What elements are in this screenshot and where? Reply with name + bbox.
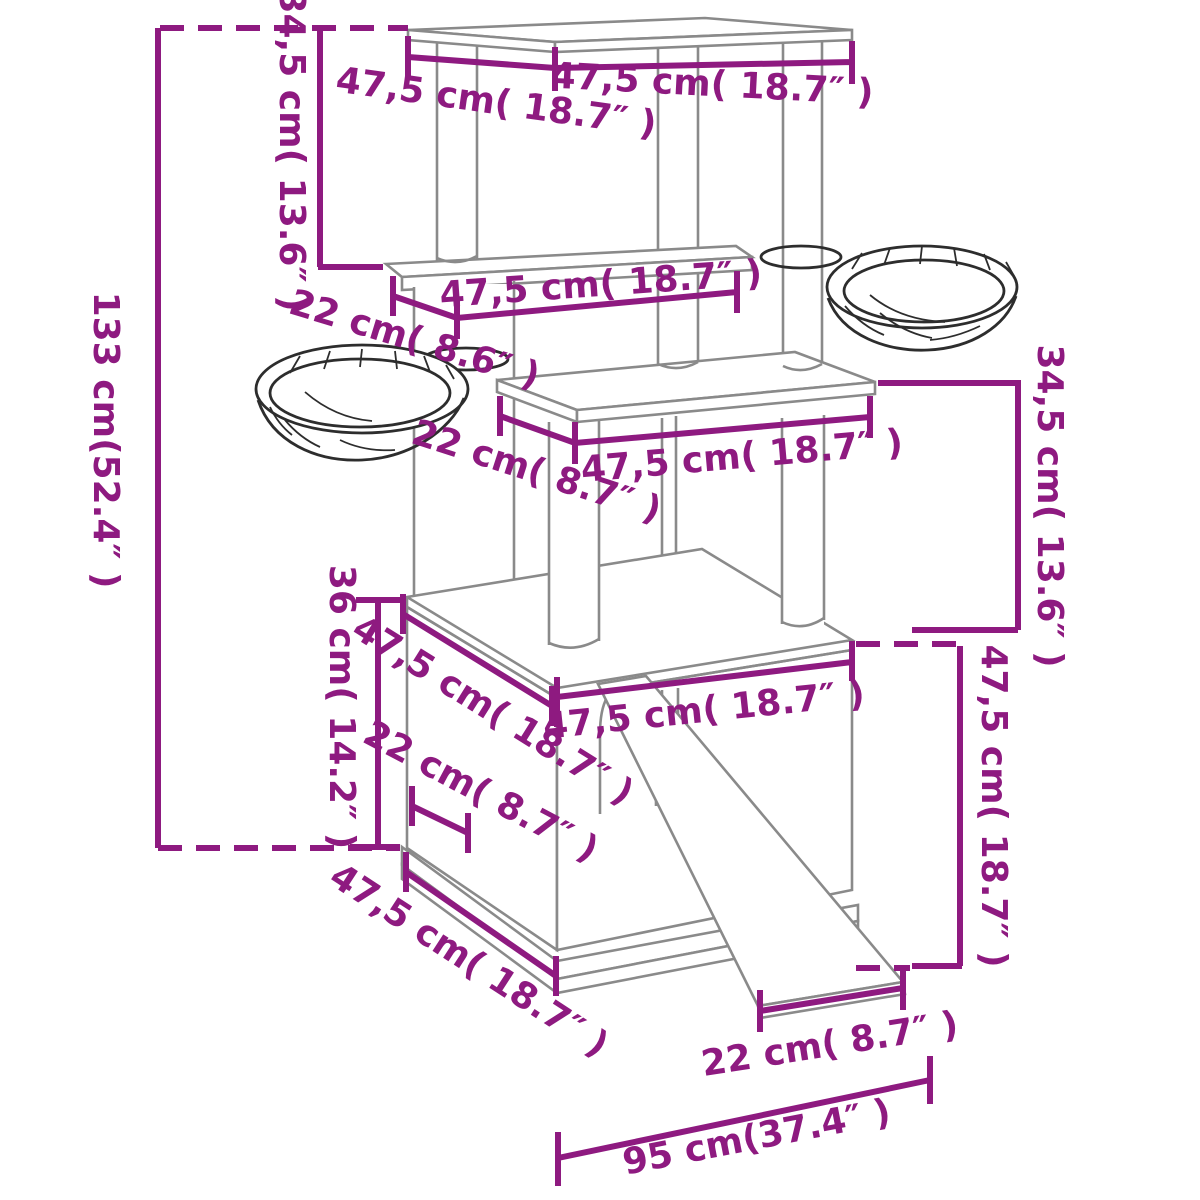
dimension-diagram: 133 cm(52.4″ ) 34,5 cm( 13.6″ ) 47,5 cm(… xyxy=(0,0,1200,1200)
cat-tree-dimension-drawing: 133 cm(52.4″ ) 34,5 cm( 13.6″ ) 47,5 cm(… xyxy=(0,0,1200,1200)
third-platform xyxy=(497,352,875,422)
scratching-post-left-upper xyxy=(437,34,477,262)
dim-label-total-height: 133 cm(52.4″ ) xyxy=(85,292,126,589)
dim-label-upper-section-height-left: 34,5 cm( 13.6″ ) xyxy=(271,0,312,312)
dim-ramp-section-height: 47,5 cm( 18.7″ ) xyxy=(856,644,1014,968)
dim-upper-section-height-left: 34,5 cm( 13.6″ ) xyxy=(271,0,383,312)
post-body xyxy=(437,34,477,262)
dim-label-ramp-section-height: 47,5 cm( 18.7″ ) xyxy=(973,644,1014,967)
dim-line xyxy=(878,383,1018,630)
dim-label-total-depth: 95 cm(37.4″ ) xyxy=(619,1091,894,1183)
dim-label-ramp-bottom-width: 22 cm( 8.7″ ) xyxy=(698,1004,961,1085)
dim-house-height: 36 cm( 14.2″ ) xyxy=(321,565,402,849)
dim-label-middle-section-height-right: 34,5 cm( 13.6″ ) xyxy=(1029,344,1070,667)
dim-middle-section-height-right: 34,5 cm( 13.6″ ) xyxy=(878,344,1070,667)
dim-label-house-height: 36 cm( 14.2″ ) xyxy=(321,565,362,849)
dim-line xyxy=(912,646,962,966)
dim-label-third-platform-width: 47,5 cm( 18.7″ ) xyxy=(579,422,904,491)
